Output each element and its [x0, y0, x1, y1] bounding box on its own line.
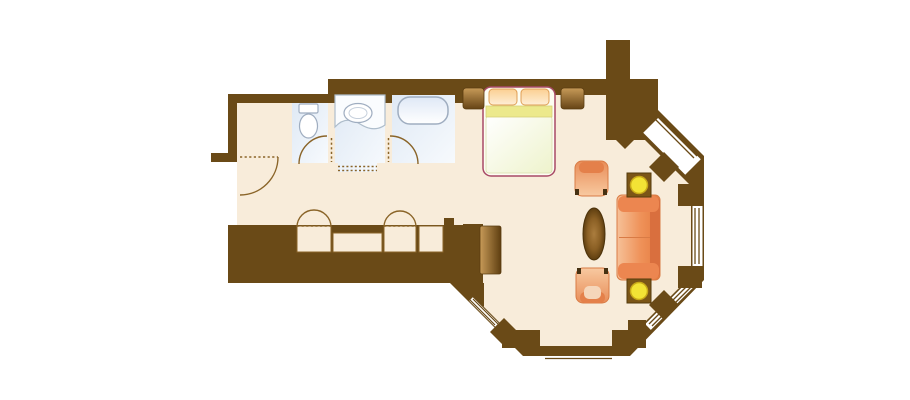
- pier-s-right-step: [628, 320, 646, 334]
- luggage-recess: [333, 233, 382, 252]
- pier-sw-step: [466, 283, 480, 295]
- bed-blanket-band: [486, 106, 552, 117]
- lamp-top: [631, 177, 648, 194]
- closet-1-recess: [297, 226, 331, 252]
- wall-left: [228, 94, 238, 162]
- wall-tab: [444, 218, 454, 226]
- wall-chimney-column: [606, 40, 630, 81]
- armchair-bottom-foot-left: [577, 268, 581, 274]
- sofa-armrest-bottom: [618, 263, 659, 279]
- armchair-bottom-foot-right: [604, 268, 608, 274]
- armchair-top-foot-left: [575, 189, 579, 195]
- wall-entry-stub: [211, 153, 237, 162]
- sink: [344, 104, 372, 123]
- nightstand-left: [463, 88, 484, 109]
- pillow-right: [521, 89, 549, 105]
- toilet-bowl: [300, 114, 318, 138]
- closet-2-recess: [384, 226, 416, 252]
- nightstand-right: [561, 88, 584, 109]
- window-gap-e: [693, 206, 703, 266]
- floor-plan-svg: [0, 0, 910, 400]
- wall-top-left: [228, 94, 335, 103]
- dresser: [480, 226, 501, 274]
- armchair-top-foot-right: [603, 189, 607, 195]
- coffee-table-oval: [583, 208, 605, 260]
- bed-mattress: [486, 116, 552, 173]
- armchair-bottom-seat: [584, 286, 601, 299]
- toilet-tank: [299, 104, 318, 113]
- floor-plan-page: [0, 0, 910, 400]
- pier-se-block: [678, 266, 702, 288]
- lamp-bottom: [631, 283, 648, 300]
- pillow-left: [489, 89, 517, 105]
- shelf-recess: [419, 226, 443, 252]
- pier-ne-block: [678, 184, 702, 206]
- sofa-armrest-top: [618, 196, 659, 212]
- armchair-top-back: [579, 162, 604, 173]
- bathtub: [398, 97, 448, 124]
